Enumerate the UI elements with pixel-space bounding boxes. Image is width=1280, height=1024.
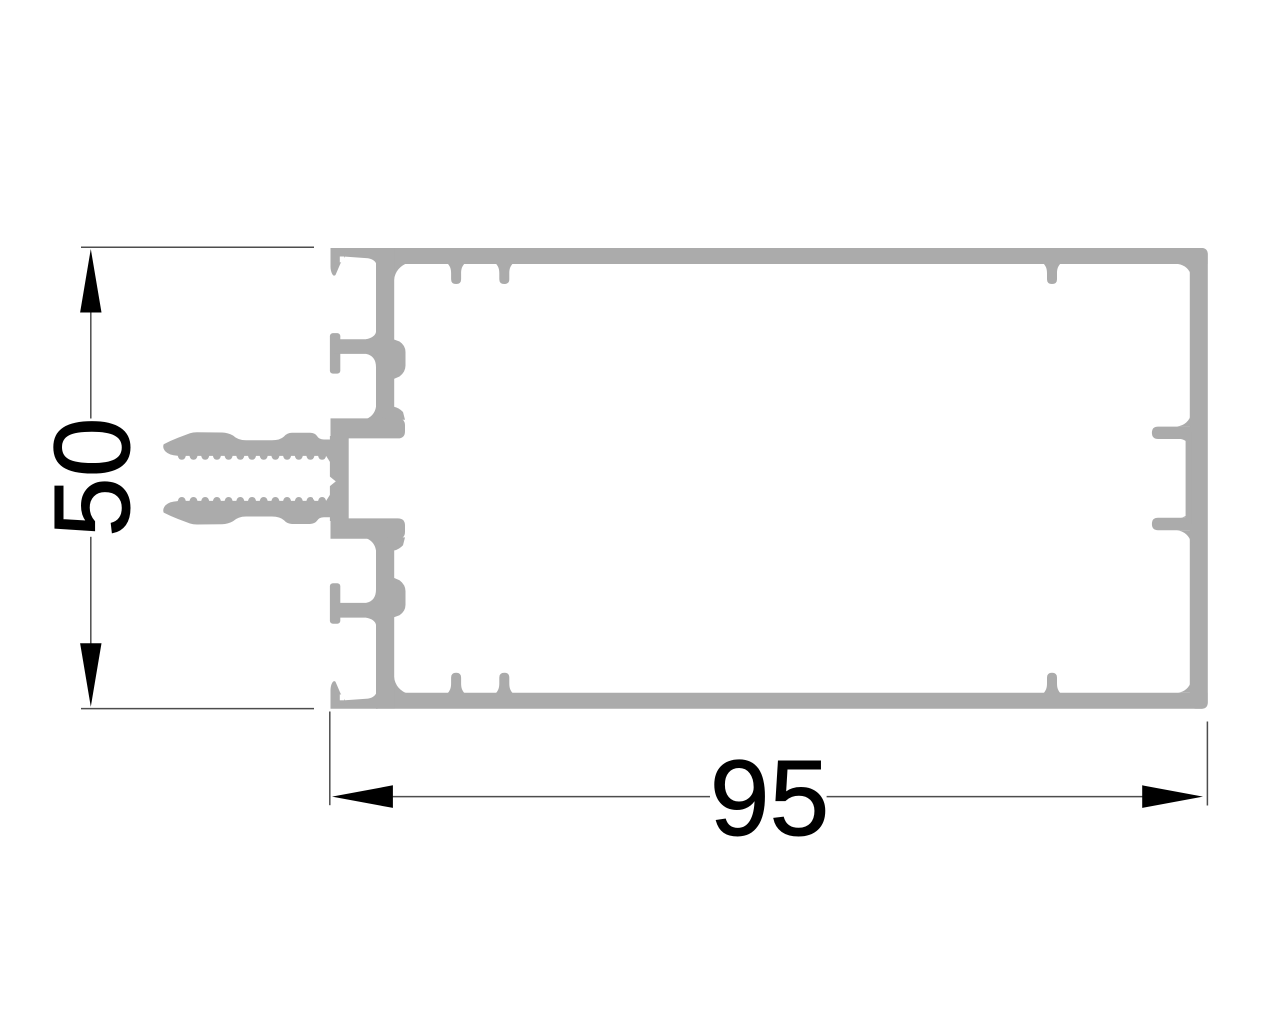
svg-text:95: 95 — [710, 738, 830, 858]
svg-text:50: 50 — [32, 418, 152, 538]
